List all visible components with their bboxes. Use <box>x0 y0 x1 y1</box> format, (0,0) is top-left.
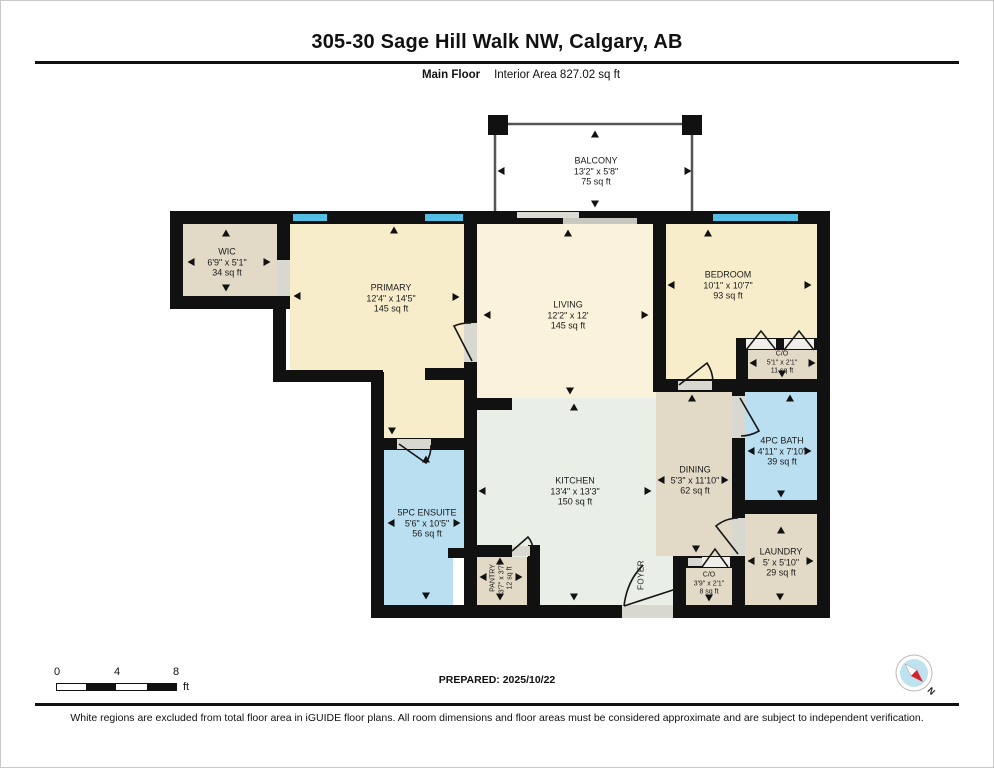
footer-divider <box>35 703 959 706</box>
wall <box>170 296 290 309</box>
floorplan-canvas: BALCONY13'2" x 5'8"75 sq ft WIC6'9" x 5'… <box>0 0 994 768</box>
dimension-arrow-left-icon <box>498 167 505 175</box>
wall <box>464 398 512 410</box>
dimension-arrow-left-icon <box>484 311 491 319</box>
wall <box>673 605 830 618</box>
room-label-bath: 4PC BATH4'11" x 7'10"39 sq ft <box>758 435 807 467</box>
room-label-dining: DINING5'3" x 11'10"62 sq ft <box>671 464 720 496</box>
sliding-door <box>563 218 637 224</box>
dimension-arrow-up-icon <box>704 230 712 237</box>
wall <box>371 372 384 618</box>
window <box>425 212 463 223</box>
dimension-arrow-up-icon <box>688 395 696 402</box>
dimension-arrow-down-icon <box>776 594 784 601</box>
room-label-ensuite: 5PC ENSUITE5'6" x 10'5"56 sq ft <box>397 507 456 539</box>
dimension-arrow-up-icon <box>564 230 572 237</box>
dimension-arrow-up-icon <box>390 227 398 234</box>
dimension-arrow-up-icon <box>777 527 785 534</box>
dimension-arrow-left-icon <box>658 476 665 484</box>
dimension-arrow-right-icon <box>809 359 816 367</box>
dimension-arrow-left-icon <box>678 580 685 588</box>
room-label-kitchen: KITCHEN13'4" x 13'3"150 sq ft <box>550 475 599 507</box>
dimension-arrow-left-icon <box>388 519 395 527</box>
dimension-arrow-right-icon <box>645 487 652 495</box>
room-label-pantry: PANTRY3'7" x 3'7"12 sq ft <box>489 563 515 594</box>
wall <box>817 211 830 618</box>
dimension-arrow-down-icon <box>422 593 430 600</box>
dimension-arrow-down-icon <box>566 388 574 395</box>
dimension-arrow-up-icon <box>422 456 430 463</box>
wall <box>170 211 183 309</box>
dimension-arrow-right-icon <box>807 557 814 565</box>
wall <box>653 224 666 392</box>
door-opening <box>512 546 530 556</box>
dimension-arrow-down-icon <box>692 546 700 553</box>
wall <box>425 368 477 380</box>
room-fill-foyer <box>656 556 673 605</box>
dimension-arrow-down-icon <box>222 285 230 292</box>
prepared-date: PREPARED: 2025/10/22 <box>0 674 994 686</box>
balcony-post <box>682 115 702 135</box>
dimension-arrow-right-icon <box>722 476 729 484</box>
wall <box>273 370 383 382</box>
wall <box>277 224 290 264</box>
room-label-wic: WIC6'9" x 5'1"34 sq ft <box>207 246 246 278</box>
wall <box>732 500 830 514</box>
wall <box>371 605 622 618</box>
dimension-arrow-up-icon <box>786 395 794 402</box>
window <box>713 212 798 223</box>
door-opening <box>732 518 745 556</box>
dimension-arrow-up-icon <box>591 131 599 138</box>
dimension-arrow-down-icon <box>777 491 785 498</box>
dimension-arrow-left-icon <box>294 292 301 300</box>
dimension-arrow-left-icon <box>750 359 757 367</box>
door-opening <box>732 396 745 438</box>
door-opening <box>688 558 702 566</box>
dimension-arrow-down-icon <box>388 428 396 435</box>
room-label-laundry: LAUNDRY5' x 5'10"29 sq ft <box>760 546 803 578</box>
dimension-arrow-right-icon <box>453 293 460 301</box>
room-label-foyer-closet: C/O3'9" x 2'1"8 sq ft <box>694 571 725 597</box>
dimension-arrow-right-icon <box>642 311 649 319</box>
dimension-arrow-left-icon <box>748 447 755 455</box>
dimension-arrow-left-icon <box>668 281 675 289</box>
wall <box>448 548 477 558</box>
window <box>293 212 327 223</box>
dimension-arrow-down-icon <box>570 594 578 601</box>
dimension-arrow-left-icon <box>480 573 487 581</box>
room-label-bedroom: BEDROOM10'1" x 10'7"93 sq ft <box>703 269 752 301</box>
excluded-region <box>453 558 464 605</box>
closet-opening <box>784 339 814 349</box>
room-label-bedroom-closet: C/O5'1" x 2'1"11 sq ft <box>767 350 798 376</box>
dimension-arrow-right-icon <box>734 580 741 588</box>
room-label-living: LIVING12'2" x 12'145 sq ft <box>547 299 588 331</box>
closet-opening <box>702 557 730 567</box>
door-opening <box>397 439 431 449</box>
entry-door-opening <box>622 605 673 618</box>
floorplan-page: 305-30 Sage Hill Walk NW, Calgary, AB Ma… <box>0 0 994 768</box>
dimension-arrow-left-icon <box>479 487 486 495</box>
door-opening <box>277 260 290 296</box>
wall <box>527 557 540 618</box>
room-fill-primary-hall <box>384 370 464 438</box>
door-opening <box>464 323 477 362</box>
dimension-arrow-right-icon <box>805 281 812 289</box>
dimension-arrow-left-icon <box>748 557 755 565</box>
disclaimer-text: White regions are excluded from total fl… <box>0 712 994 724</box>
dimension-arrow-down-icon <box>496 594 504 601</box>
dimension-arrow-right-icon <box>264 258 271 266</box>
wall <box>477 545 512 557</box>
wall <box>464 224 477 323</box>
room-label-foyer: FOYER <box>637 560 646 590</box>
room-label-primary: PRIMARY12'4" x 14'5"145 sq ft <box>366 282 415 314</box>
dimension-arrow-down-icon <box>591 201 599 208</box>
closet-opening <box>746 339 776 349</box>
dimension-arrow-right-icon <box>685 167 692 175</box>
wall <box>464 410 477 618</box>
dimension-arrow-up-icon <box>222 230 230 237</box>
dimension-arrow-right-icon <box>516 573 523 581</box>
balcony-post <box>488 115 508 135</box>
dimension-arrow-left-icon <box>188 258 195 266</box>
door-opening <box>678 381 712 390</box>
dimension-arrow-up-icon <box>570 404 578 411</box>
room-label-balcony: BALCONY13'2" x 5'8"75 sq ft <box>574 155 618 187</box>
